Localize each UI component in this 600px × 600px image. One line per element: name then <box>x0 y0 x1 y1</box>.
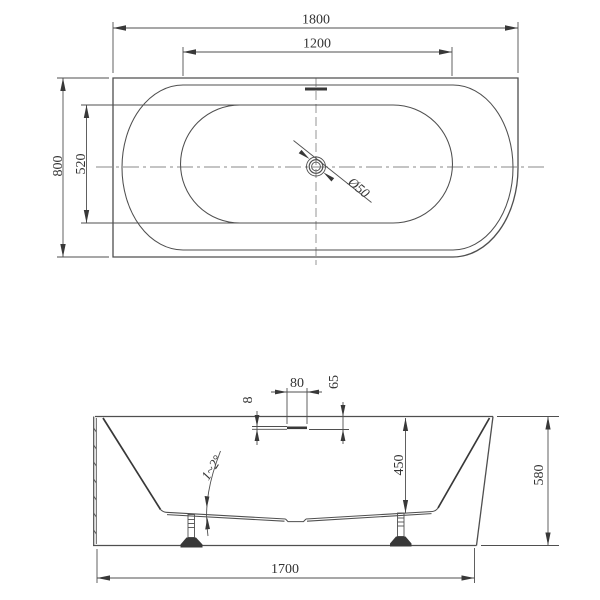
arrowhead-top <box>60 78 65 91</box>
basin-profile <box>103 418 490 522</box>
leg-foot-base <box>181 545 203 548</box>
dim-floor-slope: 1~2° <box>198 451 225 536</box>
arrowhead-right <box>307 390 319 395</box>
tub-shell-outline <box>93 417 493 546</box>
drain-arrow-lower <box>323 172 334 181</box>
dim-520-label: 520 <box>74 154 89 175</box>
drain-arrow-upper <box>299 150 310 159</box>
tub-basin-outline <box>181 105 453 223</box>
drain-recess <box>286 519 307 522</box>
floor-corner-left <box>161 510 167 513</box>
dim-drain-label: Ø50 <box>344 174 372 201</box>
arrowhead-bottom <box>84 210 89 223</box>
adjustable-leg-right <box>390 513 412 547</box>
dim-80-label: 80 <box>290 376 304 391</box>
inner-wall-right-slant <box>438 418 490 508</box>
leg-foot-base <box>390 544 412 547</box>
dim-slope-label: 1~2° <box>198 452 225 483</box>
inner-wall-left-slant <box>103 418 161 510</box>
arrowhead-bottom <box>60 244 65 257</box>
dim-1700-label: 1700 <box>271 562 299 577</box>
floor-corner-right <box>433 508 439 512</box>
arrowhead-up <box>341 430 346 442</box>
dim-800-label: 800 <box>51 156 66 177</box>
dim-inner-length: 1200 <box>183 37 452 77</box>
arrowhead-right <box>439 49 452 54</box>
arrowhead-down <box>255 415 260 427</box>
dim-rim-to-overflow: 65 <box>309 375 349 444</box>
leg-shaft <box>188 515 195 538</box>
drain <box>307 157 326 176</box>
arrowhead-up <box>255 429 260 441</box>
leg-foot <box>181 538 203 545</box>
arrowhead-left <box>275 390 287 395</box>
dim-base-length: 1700 <box>97 548 475 583</box>
arrowhead-up <box>205 518 210 530</box>
elevation-view: 80 8 65 450 <box>93 375 559 583</box>
arrowhead-top <box>403 418 408 431</box>
arrowhead-top <box>545 417 550 430</box>
dim-580-label: 580 <box>532 465 547 486</box>
drawing-page: Ø50 1800 1200 800 <box>0 0 600 600</box>
dim-450-label: 450 <box>392 455 407 476</box>
adjustable-leg-left <box>181 515 203 548</box>
dim-inner-width: 520 <box>74 105 240 223</box>
arrowhead-left <box>113 25 126 30</box>
dim-1800-label: 1800 <box>302 13 330 28</box>
bathtub-technical-drawing: Ø50 1800 1200 800 <box>0 0 600 600</box>
dim-overflow-slot-height: 8 <box>241 397 287 446</box>
arrowhead-left <box>183 49 196 54</box>
dim-overall-height: 580 <box>481 417 559 546</box>
arrowhead-down <box>205 496 210 508</box>
arrowhead-left <box>97 575 110 580</box>
arrowhead-down <box>341 405 346 417</box>
arrowhead-bottom <box>545 533 550 546</box>
arrowhead-top <box>84 105 89 118</box>
dim-65-label: 65 <box>327 375 342 389</box>
dim-inner-depth: 450 <box>392 418 408 513</box>
dim-drain-diameter: Ø50 <box>294 141 373 203</box>
arrowhead-right <box>462 575 475 580</box>
dim-1200-label: 1200 <box>303 37 331 52</box>
leg-shaft <box>398 513 405 537</box>
leg-foot <box>390 537 412 544</box>
overflow-slot-elevation <box>287 427 307 430</box>
plan-view: Ø50 1800 1200 800 <box>51 13 546 266</box>
overflow-slot-plan <box>305 88 327 91</box>
arrowhead-right <box>505 25 518 30</box>
arrowhead-bottom <box>403 500 408 513</box>
dim-8-label: 8 <box>241 397 256 404</box>
